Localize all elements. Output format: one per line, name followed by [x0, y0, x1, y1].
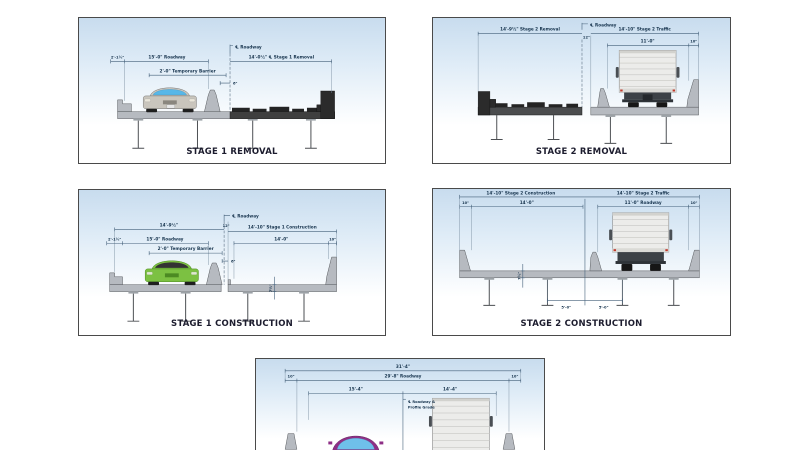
- bridge-deck: [591, 107, 699, 115]
- left-curb: [110, 273, 123, 285]
- bridge-deck: [110, 285, 221, 292]
- dim-label-offset: 6": [233, 82, 238, 86]
- dim-label-thickness: 7½": [269, 284, 273, 292]
- right-parapet: [689, 250, 700, 271]
- panel-stage1-removal: 2'-1½" 15'-0" Roadway 2'-0" Temporary Ba…: [78, 17, 386, 164]
- dimension-labels: 2'-1½" 15'-0" Roadway 2'-0" Temporary Ba…: [111, 45, 315, 86]
- panel-title-stage1-construction: STAGE 1 CONSTRUCTION: [79, 319, 385, 329]
- panel-stage2-construction: 14'-10" Stage 2 Construction 14'-10" Sta…: [432, 188, 731, 336]
- bridge-deck: [460, 271, 700, 278]
- panel-stage2-removal: 14'-9½" Stage 2 Removal ℄ Roadway 12" 14…: [432, 17, 731, 164]
- dim-label-parapet: 10": [690, 39, 697, 43]
- stage1-construction-drawing: 14'-9½" ℄ Roadway 12" 14'-10" Stage 1 Co…: [79, 190, 385, 335]
- right-parapet: [326, 257, 337, 285]
- dim-label-parapet-left: 10": [462, 201, 469, 205]
- new-deck: [228, 257, 337, 321]
- girders: [483, 278, 679, 306]
- median-barrier: [590, 252, 602, 271]
- dim-label-left-total: 14'-9½": [160, 221, 178, 227]
- car-icon: [328, 436, 383, 450]
- mirror: [609, 229, 612, 240]
- dim-label-centerline: ℄ Roadway: [590, 22, 617, 27]
- panel-final-section: 31'-4" 10" 29'-8" Roadway 10" 15'-4" 14'…: [255, 358, 545, 450]
- truck-icon: [609, 213, 672, 271]
- panel-title-stage2-removal: STAGE 2 REMOVAL: [433, 147, 730, 157]
- dim-label-centerline: ℄ Roadway: [232, 214, 259, 219]
- dimension-labels: 14'-9½" Stage 2 Removal ℄ Roadway 12" 14…: [500, 22, 697, 43]
- dim-label-traffic: 14'-10" Stage 2 Traffic: [618, 27, 671, 32]
- left-parapet: [460, 250, 471, 271]
- car-icon: [143, 88, 196, 112]
- dim-label-removal: 14'-9½" Stage 2 Removal: [500, 27, 560, 32]
- dim-label-left-lane: 15'-4": [349, 386, 363, 391]
- dim-label-roadway: 15'-0" Roadway: [148, 54, 185, 59]
- mirror: [677, 67, 680, 78]
- dim-label-thickness: 7½": [517, 272, 521, 280]
- old-parapet-removal: [478, 91, 490, 115]
- dim-label-roadway: 15'-0" Roadway: [146, 236, 183, 241]
- mirror: [669, 229, 672, 240]
- temporary-barrier: [204, 90, 220, 112]
- dim-label-joint-offset: 12": [223, 224, 230, 228]
- construction-joint-stub: [228, 280, 230, 285]
- dim-label-parapet-right: 10": [690, 201, 697, 205]
- dim-label-right-lane: 14'-4": [443, 386, 457, 391]
- dim-label-centerline: ℄ Roadway: [235, 45, 262, 50]
- truck-icon: [616, 50, 680, 107]
- dim-label-deck: 14'-0": [274, 236, 288, 241]
- temporary-barrier: [206, 263, 222, 285]
- right-parapet: [503, 434, 515, 450]
- panel-title-stage1-removal: STAGE 1 REMOVAL: [79, 147, 385, 157]
- mirror: [616, 67, 619, 78]
- removal-area: [230, 91, 335, 119]
- dim-label-temp-barrier: 2'-0" Temporary Barrier: [160, 69, 217, 74]
- dim-label-parapet: 10": [329, 237, 336, 241]
- dim-label-construction: 14'-10" Stage 2 Construction: [486, 190, 555, 195]
- mirror: [429, 416, 432, 427]
- dim-label-spacing-right: 5'-0": [599, 305, 609, 309]
- mirror: [490, 416, 493, 427]
- mirror: [328, 441, 332, 444]
- dim-label-edge: 2'-1½": [111, 55, 124, 59]
- old-parapet-removal: [321, 91, 335, 119]
- construction-staging-sheet: 2'-1½" 15'-0" Roadway 2'-0" Temporary Ba…: [0, 0, 800, 450]
- stage2-removal-drawing: 14'-9½" Stage 2 Removal ℄ Roadway 12" 14…: [433, 18, 730, 163]
- left-parapet: [285, 434, 297, 450]
- stage1-removal-drawing: 2'-1½" 15'-0" Roadway 2'-0" Temporary Ba…: [79, 18, 385, 163]
- left-curb: [118, 100, 132, 112]
- dim-label-edge: 2'-1½": [108, 237, 121, 241]
- mirror: [379, 441, 383, 444]
- dim-label-centerline-line2: Profile Grade: [408, 406, 435, 410]
- right-parapet: [687, 80, 699, 107]
- dim-label-parapet-left: 10": [288, 375, 295, 379]
- final-section-drawing: 31'-4" 10" 29'-8" Roadway 10" 15'-4" 14'…: [256, 359, 544, 450]
- old-deck-removal: [478, 91, 582, 139]
- dim-label-joint-offset: 12": [583, 36, 590, 40]
- girders: [132, 119, 316, 149]
- dim-label-removal: 14'-0½" ℄ Stage 1 Removal: [249, 53, 315, 59]
- stage2-construction-drawing: 14'-10" Stage 2 Construction 14'-10" Sta…: [433, 189, 730, 335]
- car-icon: [145, 261, 198, 285]
- dim-label-parapet-right: 10": [511, 375, 518, 379]
- dim-label-lane: 11'-0": [641, 38, 655, 43]
- dim-label-centerline-line1: ℄ Roadway &: [408, 400, 436, 404]
- dim-label-temp-barrier: 2'-0" Temporary Barrier: [158, 246, 215, 251]
- dim-label-roadway: 29'-8" Roadway: [385, 374, 422, 379]
- dim-label-roadway: 11'-0" Roadway: [625, 200, 662, 205]
- dim-label-total: 31'-4": [396, 364, 410, 369]
- dim-label-spacing-left: 5'-0": [561, 305, 571, 309]
- dim-label-gap: 6": [231, 260, 236, 264]
- dim-label-traffic: 14'-10" Stage 2 Traffic: [617, 190, 670, 195]
- new-deck-slab: [228, 285, 337, 292]
- truck-icon: [429, 398, 493, 450]
- dim-label-construction: 14'-10" Stage 1 Construction: [248, 224, 317, 229]
- panel-title-stage2-construction: STAGE 2 CONSTRUCTION: [433, 319, 730, 329]
- dim-label-deck: 14'-0": [520, 200, 534, 205]
- panel-stage1-construction: 14'-9½" ℄ Roadway 12" 14'-10" Stage 1 Co…: [78, 189, 386, 336]
- temporary-barrier: [598, 89, 610, 108]
